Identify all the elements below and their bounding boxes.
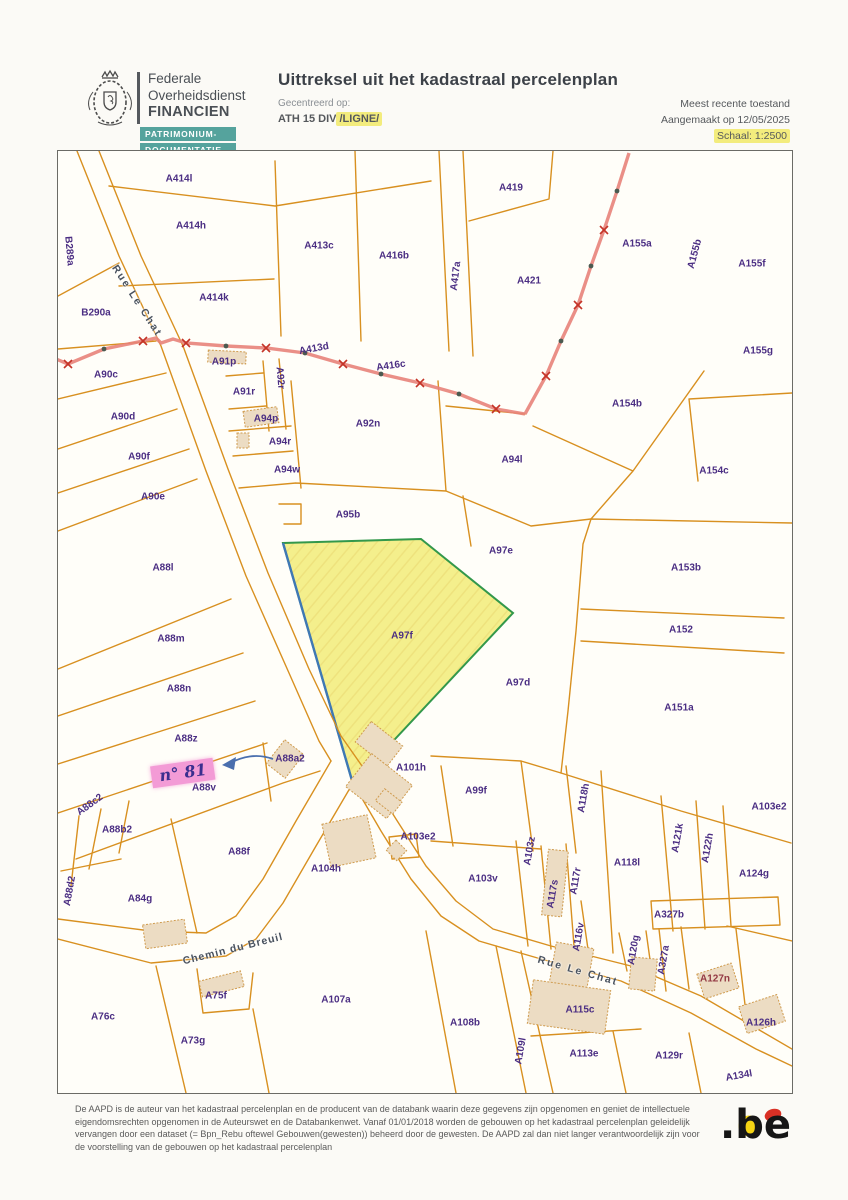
status-line: Meest recente toestand [661,96,790,112]
parcel-label-A107a: A107a [321,995,350,1006]
parcel-label-A155f: A155f [738,259,765,270]
parcel-label-A103e2: A103e2 [751,802,786,813]
parcel-label-A92r: A92r [274,366,287,389]
parcel-label-A108b: A108b [450,1018,480,1029]
parcel-label-A414h: A414h [176,221,206,232]
agency-line3: FINANCIEN [148,104,246,121]
parcel-label-A97e: A97e [489,546,513,557]
parcel-label-A95b: A95b [336,510,360,521]
centered-on-value: ATH 15 DIV/LIGNE/ [278,113,382,125]
boundary-dot-mark [457,392,462,397]
boundary-dot-mark [102,347,107,352]
parcel-label-A73g: A73g [181,1036,205,1047]
created-line: Aangemaakt op 12/05/2025 [661,112,790,128]
parcel-label-A88b2: A88b2 [102,825,132,836]
parcel-label-A414l: A414l [166,174,193,185]
map-graphics [58,151,792,1093]
boundary-dot-mark [615,189,620,194]
municipal-boundary-line [58,153,629,414]
parcel-label-A154c: A154c [699,466,728,477]
parcel-label-A94p: A94p [254,414,278,425]
logo-divider [137,72,140,124]
dot-be-logo: .be [718,1098,794,1150]
parcel-label-A129r: A129r [655,1051,683,1062]
parcel-label-A88n: A88n [167,684,191,695]
parcel-label-B290a: B290a [81,308,110,319]
parcel-label-A327b: A327b [654,910,684,921]
parcel-label-A155g: A155g [743,346,773,357]
parcel-label-A103v: A103v [468,874,497,885]
parcel-label-A75f: A75f [205,991,227,1002]
parcel-label-A97d: A97d [506,678,530,689]
page: Federale Overheidsdienst FINANCIEN PATRI… [0,0,848,1200]
parcel-label-A115c: A115c [566,1005,595,1016]
parcel-label-A421: A421 [517,276,541,287]
parcel-label-A88a2: A88a2 [275,754,304,765]
parcel-label-A91r: A91r [233,387,255,398]
belgium-coat-of-arms-logo [84,68,136,128]
parcel-label-A151a: A151a [664,703,693,714]
parcel-label-A92n: A92n [356,419,380,430]
centered-on-label: Gecentreerd op: [278,98,350,109]
parcel-label-A99f: A99f [465,786,487,797]
map-meta: Meest recente toestand Aangemaakt op 12/… [661,96,790,144]
parcel-label-A84g: A84g [128,894,152,905]
parcel-label-A154b: A154b [612,399,642,410]
parcel-label-A153b: A153b [671,563,701,574]
parcel-label-A104h: A104h [311,864,341,875]
parcel-label-A419: A419 [499,183,523,194]
agency-line2: Overheidsdienst [148,87,246,104]
parcel-label-A90c: A90c [94,370,118,381]
parcel-label-A101h: A101h [396,763,426,774]
parcel-label-A88f: A88f [228,847,250,858]
parcel-label-A127n: A127n [700,974,730,985]
parcel-label-A126h: A126h [746,1018,776,1029]
cadastral-map: A414lA414hB289aB290aA90cA91pA92rA91rA413… [57,150,793,1094]
be-logo-text: .be [720,1102,791,1148]
parcel-label-A124g: A124g [739,869,769,880]
boundary-dot-mark [224,344,229,349]
parcel-label-A90e: A90e [141,492,165,503]
parcel-label-A118l: A118l [614,858,640,869]
parcel-label-A88l: A88l [152,563,173,574]
parcel-label-A152: A152 [669,625,693,636]
parcel-label-A88z: A88z [174,734,197,745]
header: Federale Overheidsdienst FINANCIEN PATRI… [0,0,848,150]
centered-on-plain: ATH 15 DIV [278,113,336,125]
parcel-label-A97f: A97f [391,631,413,642]
parcel-label-A94w: A94w [274,465,300,476]
parcel-label-A91p: A91p [212,357,236,368]
parcel-label-A103e2: A103e2 [400,832,435,843]
parcel-label-A113e: A113e [570,1049,599,1060]
boundary-dot-mark [589,264,594,269]
parcel-label-A88v: A88v [192,783,216,794]
boundary-dot-mark [559,339,564,344]
parcel-label-A88m: A88m [157,634,184,645]
parcel-label-A413c: A413c [304,241,333,252]
footer-disclaimer: De AAPD is de auteur van het kadastraal … [75,1103,700,1153]
parcel-label-A90d: A90d [111,412,135,423]
parcel-label-A155a: A155a [622,239,651,250]
scale-line: Schaal: 1:2500 [714,129,790,143]
badge-line1: PATRIMONIUM- [140,127,236,141]
parcel-label-A76c: A76c [91,1012,115,1023]
parcel-label-A416b: A416b [379,251,409,262]
agency-name: Federale Overheidsdienst FINANCIEN [148,70,246,121]
centered-on-highlighted: /LIGNE/ [336,112,382,126]
parcel-label-A94l: A94l [501,455,522,466]
agency-line1: Federale [148,70,246,87]
parcel-label-A414k: A414k [199,293,228,304]
page-title: Uittreksel uit het kadastraal percelenpl… [278,70,618,90]
parcel-label-A94r: A94r [269,437,291,448]
parcel-label-A90f: A90f [128,452,150,463]
